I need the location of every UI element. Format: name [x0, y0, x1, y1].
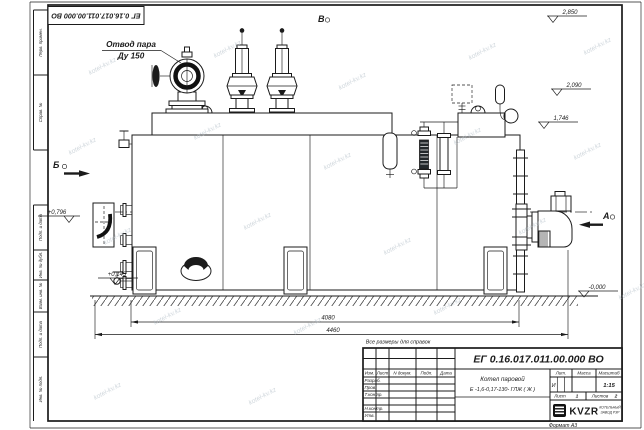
- lifting-lug: [471, 106, 485, 113]
- title-block: ЕГ 0.16.017.011.00.000 ВО Котел паровой …: [363, 348, 622, 429]
- ground-line: [90, 296, 598, 306]
- tb-header-cell: Изм.: [365, 371, 375, 376]
- steam-outlet-text: Отвод пара: [106, 40, 156, 49]
- watermark-text: kotel-kv.kz: [68, 136, 99, 157]
- frame-col-label: Перв. примен.: [38, 28, 43, 57]
- elevation-value: 2,850: [561, 10, 578, 16]
- doc-number-top: ЕГ 0.16.017.011.00.000 ВО: [51, 12, 141, 21]
- dimension-value: 4080: [321, 316, 335, 322]
- frame-col-label: Инв. № дубл.: [38, 252, 43, 278]
- titleblock-model: Е -1,6-0,17-130- ГЛЖ ( Ж ): [470, 387, 535, 393]
- frame-col-label: Справ. №: [38, 102, 43, 122]
- elevation-mark: -0,000: [578, 285, 618, 297]
- elevation-mark: 2,850: [547, 10, 587, 23]
- view-label-v: В: [318, 14, 325, 24]
- elevation-mark: 1,746: [538, 116, 578, 129]
- tb-row-label: Пров.: [365, 385, 377, 390]
- tb-mass-label: Масса: [577, 371, 591, 376]
- watermark-text: kotel-kv.kz: [153, 306, 184, 327]
- titleblock-name: Котел паровой: [480, 376, 525, 383]
- reference-note: Все размеры для справок: [366, 340, 431, 346]
- drawing-sheet: Перв. примен. Справ. № Подп. и дата Инв.…: [0, 0, 644, 430]
- view-label-b: Б: [53, 160, 60, 170]
- watermark-text: kotel-kv.kz: [248, 386, 279, 407]
- elevation-value: 2,090: [565, 83, 582, 89]
- elevation-value: +0,796: [48, 210, 67, 216]
- safety-valve: [267, 28, 297, 112]
- tb-scale-value: 1:15: [603, 383, 615, 389]
- boiler-drawing-svg: Перв. примен. Справ. № Подп. и дата Инв.…: [0, 0, 644, 430]
- watermark-text: kotel-kv.kz: [338, 71, 369, 92]
- tb-scale-label: Масштаб: [598, 371, 619, 376]
- steam-outlet-valve: [152, 47, 208, 113]
- tb-sheet-label: Лист: [553, 394, 566, 399]
- frame-col-label: Инв. № подл.: [38, 376, 43, 403]
- frame-col-label: Взам. инв. №: [38, 282, 43, 309]
- format-note: Формат А3: [549, 423, 577, 429]
- tb-row-label: Утв.: [365, 413, 375, 418]
- watermark-text: kotel-kv.kz: [468, 41, 499, 62]
- tb-header-cell: Подп.: [421, 371, 433, 376]
- titleblock-doc-number: ЕГ 0.16.017.011.00.000 ВО: [473, 354, 603, 366]
- elevation-value: -0,000: [588, 285, 606, 291]
- watermark-text: kotel-kv.kz: [93, 381, 124, 402]
- tb-row-label: Н.контр.: [365, 406, 384, 411]
- elevation-mark: +0,796: [38, 210, 80, 223]
- elevation-value: 1,746: [553, 116, 569, 122]
- tb-row-label: Разраб.: [365, 378, 381, 383]
- company-name-line2: ЗАВОД РЗР: [601, 411, 621, 415]
- tb-header-cell: Дата: [439, 371, 452, 376]
- frame-col-label: Подп. и дата: [38, 320, 43, 348]
- watermark-text: kotel-kv.kz: [583, 36, 614, 57]
- company-name-line1: КОТЕЛЬНЫЙ: [599, 406, 621, 410]
- tb-sheets-label: Листов: [591, 394, 609, 399]
- tb-lit-value: И: [552, 383, 556, 389]
- tb-sheet-value: 1: [576, 394, 579, 400]
- tb-header-cell: N докум.: [393, 371, 411, 376]
- steam-outlet-text: Ду 150: [117, 52, 145, 61]
- frame-col-label: Подп. и дата: [38, 213, 43, 241]
- tb-row-label: Т.контр.: [365, 392, 383, 397]
- dimension-value: 4460: [326, 328, 340, 334]
- watermark-text: kotel-kv.kz: [293, 316, 324, 337]
- tb-sheets-value: 2: [614, 394, 618, 400]
- tb-header-cell: Лист: [376, 371, 389, 376]
- elevation-mark: 2,090: [551, 83, 591, 96]
- company-logo-text: KVZR: [569, 407, 599, 418]
- view-label-a: А: [602, 211, 610, 221]
- frame-side-column: Перв. примен. Справ. № Подп. и дата Инв.…: [34, 10, 49, 421]
- watermark-text: kotel-kv.kz: [573, 141, 604, 162]
- elevation-value: +0,143: [108, 272, 127, 278]
- tb-lit-label: Лит.: [555, 371, 567, 376]
- doc-number-top-box: ЕГ 0.16.017.011.00.000 ВО: [48, 7, 144, 25]
- wall-nozzles: [113, 131, 132, 290]
- boiler-drawing: Отвод пара Ду 150 2,850 2,090 1,746 +0,7…: [38, 10, 618, 346]
- watermark-text: kotel-kv.kz: [88, 56, 119, 77]
- safety-valve: [227, 28, 257, 112]
